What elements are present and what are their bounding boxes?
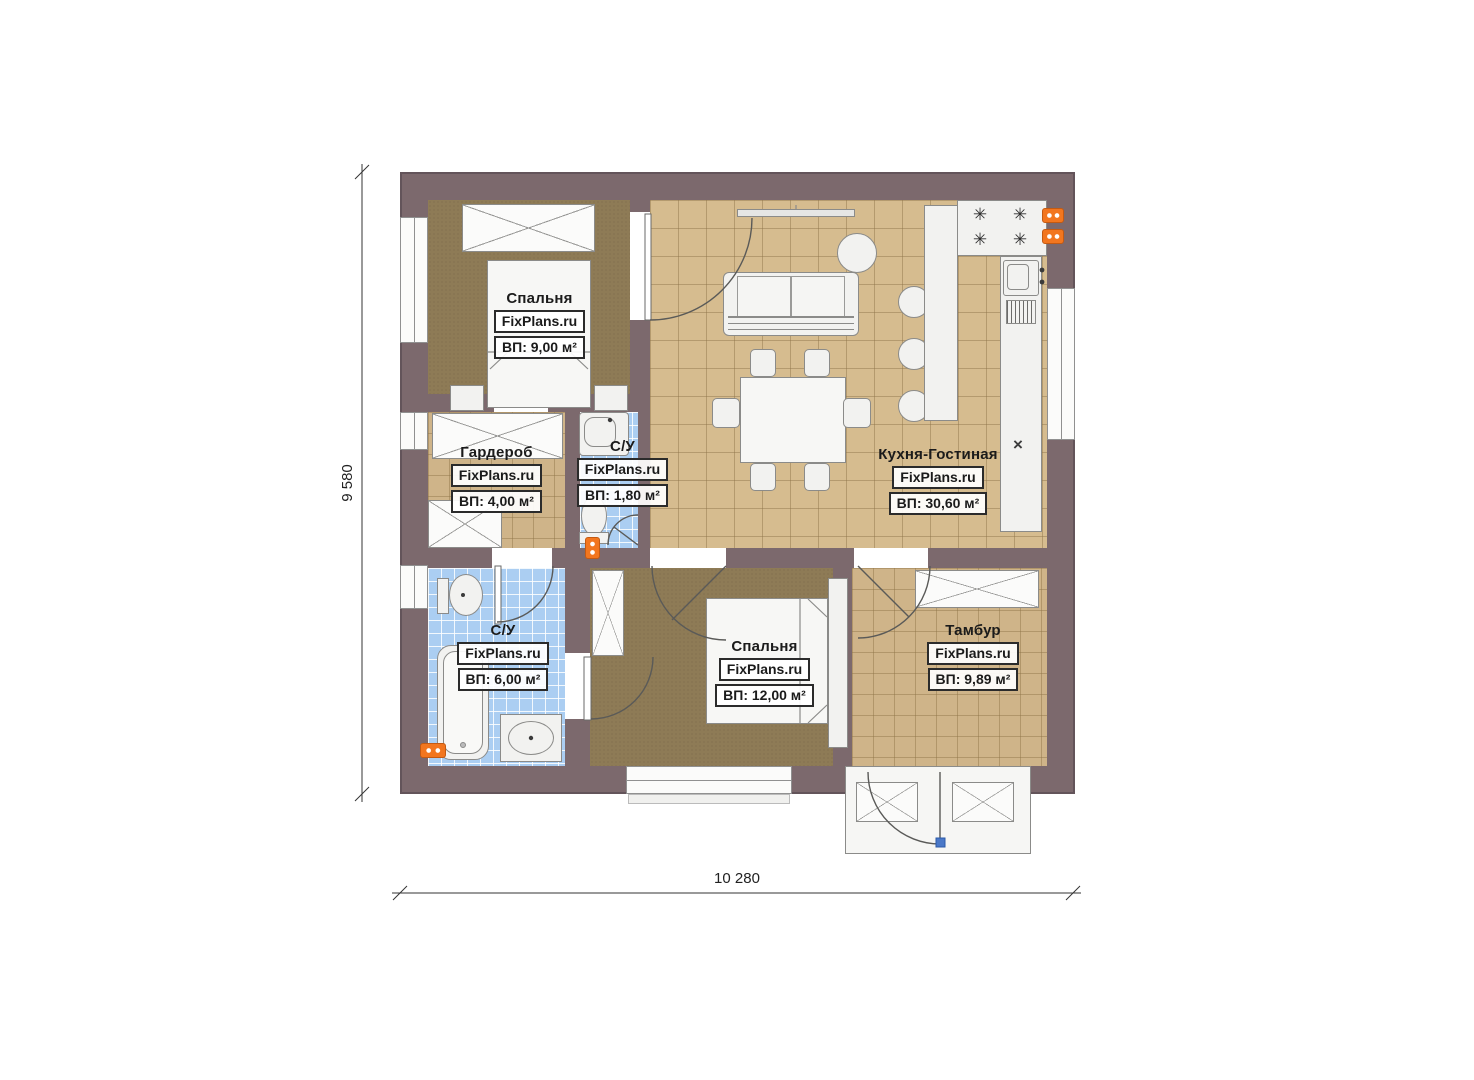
window-sill — [628, 794, 790, 804]
dining-chair-icon — [750, 463, 776, 491]
window-left-bedroom1 — [400, 217, 428, 343]
area-badge: ВП: 9,89 м² — [928, 668, 1019, 691]
burner-icon: ✳ — [1013, 205, 1027, 225]
sofa-cushion — [737, 276, 791, 320]
dim-label-height: 9 580 — [339, 464, 356, 502]
door-opening-bedroom2 — [650, 548, 726, 568]
dining-chair-icon — [804, 463, 830, 491]
window-glass — [414, 413, 415, 449]
wardrobe-icon — [915, 570, 1039, 608]
cabinet-icon — [592, 570, 624, 656]
sink-basin — [1007, 264, 1029, 290]
bar-counter-icon — [924, 205, 958, 421]
room-label-bedroom2: Спальня FixPlans.ru ВП: 12,00 м² — [692, 638, 837, 707]
dim-tick — [355, 787, 369, 801]
door-opening-bath-big — [492, 548, 552, 568]
dim-tick — [355, 165, 369, 179]
socket-icon — [1042, 208, 1064, 223]
brand-badge: FixPlans.ru — [451, 464, 542, 487]
brand-badge: FixPlans.ru — [892, 466, 983, 489]
door-opening-bedroom1 — [630, 212, 650, 320]
dim-tick — [393, 886, 407, 900]
area-badge: ВП: 1,80 м² — [577, 484, 668, 507]
area-badge: ВП: 12,00 м² — [715, 684, 814, 707]
area-badge: ВП: 4,00 м² — [451, 490, 542, 513]
dining-chair-icon — [804, 349, 830, 377]
bathtub-drain — [460, 742, 466, 748]
door-opening-bath-bedroom — [565, 653, 590, 719]
socket-icon — [1042, 229, 1064, 244]
window-glass — [414, 218, 415, 342]
floor-plan: ✳ ✳ ✳ ✳ × — [0, 0, 1474, 1080]
nightstand-icon — [450, 385, 484, 411]
window-left-wardrobe — [400, 412, 428, 450]
window-left-bath — [400, 565, 428, 609]
dim-label-width: 10 280 — [714, 870, 760, 887]
room-label-vestibule: Тамбур FixPlans.ru ВП: 9,89 м² — [898, 622, 1048, 691]
room-label-kitchen-living: Кухня-Гостиная FixPlans.ru ВП: 30,60 м² — [848, 446, 1028, 515]
dining-chair-icon — [843, 398, 871, 428]
dishwasher-grate-icon — [1006, 300, 1036, 324]
stove-icon: ✳ ✳ ✳ ✳ — [960, 202, 1040, 252]
window-glass — [1061, 289, 1062, 439]
area-badge: ВП: 6,00 м² — [458, 668, 549, 691]
toilet-tank-icon — [437, 578, 449, 614]
room-label-bath-big: С/У FixPlans.ru ВП: 6,00 м² — [443, 622, 563, 691]
sofa-cushion — [791, 276, 845, 320]
room-name: Спальня — [692, 638, 837, 655]
door-opening-vestibule — [854, 548, 928, 568]
dining-chair-icon — [712, 398, 740, 428]
nightstand-icon — [594, 385, 628, 411]
dim-tick — [1066, 886, 1080, 900]
brand-badge: FixPlans.ru — [927, 642, 1018, 665]
room-name: Гардероб — [428, 444, 565, 461]
area-badge: ВП: 9,00 м² — [494, 336, 585, 359]
side-table-icon — [837, 233, 877, 273]
toilet-icon — [449, 574, 483, 616]
room-name: Спальня — [462, 290, 617, 307]
wardrobe-icon — [462, 204, 595, 252]
window-bottom-bedroom2 — [626, 766, 792, 794]
porch-step-right — [952, 782, 1014, 822]
room-name: С/У — [570, 438, 675, 455]
brand-badge: FixPlans.ru — [577, 458, 668, 481]
burner-icon: ✳ — [973, 205, 987, 225]
dining-chair-icon — [750, 349, 776, 377]
porch-step-left — [856, 782, 918, 822]
socket-icon — [585, 537, 600, 559]
burner-icon: ✳ — [973, 230, 987, 250]
room-label-bath-small: С/У FixPlans.ru ВП: 1,80 м² — [570, 438, 675, 507]
room-name: Кухня-Гостиная — [848, 446, 1028, 463]
brand-badge: FixPlans.ru — [457, 642, 548, 665]
window-glass — [414, 566, 415, 608]
socket-icon — [420, 743, 446, 758]
sofa-icon — [723, 272, 859, 336]
dining-table-icon — [740, 377, 846, 463]
washbasin-bowl — [508, 721, 554, 755]
window-right-kitchen — [1047, 288, 1075, 440]
brand-badge: FixPlans.ru — [494, 310, 585, 333]
tv-icon — [737, 209, 855, 217]
burner-icon: ✳ — [1013, 230, 1027, 250]
area-badge: ВП: 30,60 м² — [889, 492, 988, 515]
room-name: С/У — [443, 622, 563, 639]
window-glass — [627, 780, 791, 781]
brand-badge: FixPlans.ru — [719, 658, 810, 681]
room-name: Тамбур — [898, 622, 1048, 639]
sofa-back — [728, 316, 854, 333]
room-label-wardrobe: Гардероб FixPlans.ru ВП: 4,00 м² — [428, 444, 565, 513]
room-label-bedroom1: Спальня FixPlans.ru ВП: 9,00 м² — [462, 290, 617, 359]
